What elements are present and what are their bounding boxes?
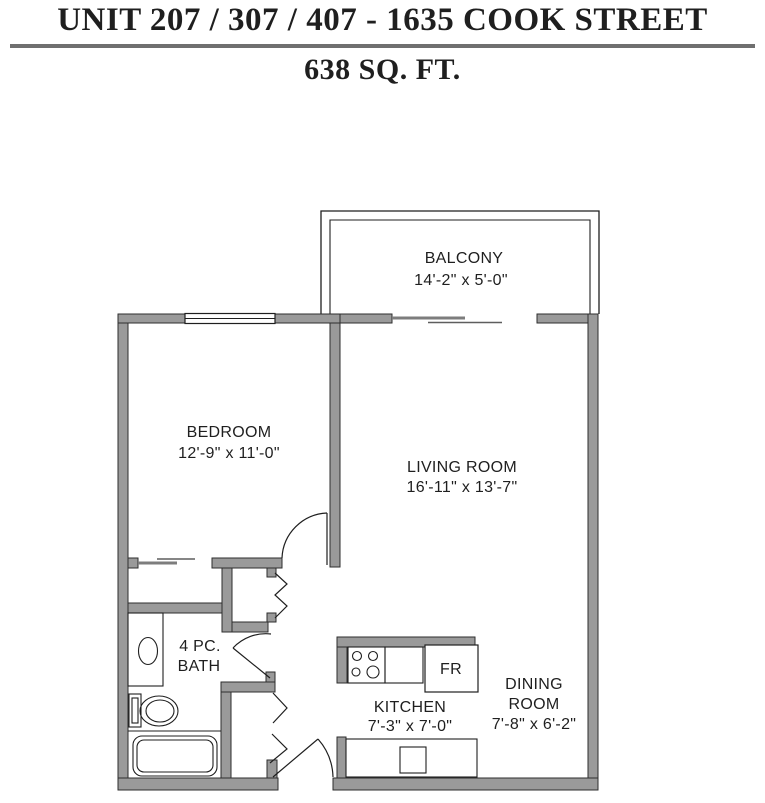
bathroom-label-line2: BATH <box>178 658 221 675</box>
tub-inner <box>137 740 213 772</box>
bathroom-top-wall <box>128 603 222 613</box>
plan-subtitle: 638 SQ. FT. <box>0 53 765 87</box>
balcony-sliding-door <box>392 318 502 323</box>
top-wall-mid <box>275 314 340 323</box>
floor-plan-page: UNIT 207 / 307 / 407 - 1635 COOK STREET … <box>0 0 765 803</box>
toilet-tank <box>129 694 141 727</box>
bedroom-dims: 12'-9" x 11'-0" <box>178 445 280 462</box>
bifold-zigzag <box>273 693 287 723</box>
vanity-sink-icon <box>128 613 163 686</box>
burner <box>352 668 360 676</box>
closet1-bottom-wall <box>232 622 268 632</box>
right-exterior-wall <box>588 314 598 790</box>
door-leaf <box>273 739 318 777</box>
kitchen-sink <box>400 747 426 773</box>
dining-room-dims: 7'-8" x 6'-2" <box>492 716 577 733</box>
tub-outer <box>133 736 217 776</box>
closet1-bifold-door <box>275 573 287 618</box>
door-arc <box>318 739 333 777</box>
bedroom-sliding-door <box>138 559 195 563</box>
bedroom-window <box>185 314 275 324</box>
bath-door-jamb <box>266 672 275 682</box>
kitchen-counter-upper <box>385 647 423 683</box>
kitchen-left-wall <box>337 647 347 683</box>
closet1-left-wall <box>222 568 232 632</box>
door-arc <box>282 513 327 558</box>
dining-room-label-line1: DINING <box>505 676 563 693</box>
bathtub-icon <box>128 731 221 776</box>
bedroom-bottom-wall <box>212 558 282 568</box>
dining-room-label-line2: ROOM <box>509 696 560 713</box>
bathroom-label-line1: 4 PC. <box>179 638 221 655</box>
bifold-zigzag <box>270 734 287 763</box>
closet1-top-jamb <box>267 568 276 577</box>
bottom-wall-right <box>333 778 598 790</box>
burner <box>369 652 378 661</box>
bedroom-door-swing <box>282 513 327 565</box>
toilet-bowl-inner <box>146 700 174 722</box>
door-arc <box>233 634 271 648</box>
bedroom-wall-stub <box>128 558 138 568</box>
top-wall-left <box>118 314 185 323</box>
balcony-dims: 14'-2" x 5'-0" <box>414 272 508 289</box>
plan-header: UNIT 207 / 307 / 407 - 1635 COOK STREET … <box>0 0 765 87</box>
door-leaf <box>233 648 270 678</box>
entry-right-jamb <box>337 737 346 778</box>
bedroom-label: BEDROOM <box>187 424 272 441</box>
toilet-icon <box>129 694 178 727</box>
bathroom-door-swing <box>233 634 271 678</box>
toilet-tank-inner <box>132 698 138 723</box>
bathroom-right-wall <box>221 692 231 778</box>
counter-outline <box>346 739 477 777</box>
balcony-inner-line <box>330 220 590 314</box>
closet1-bottom-jamb <box>267 613 276 622</box>
top-wall-at-living <box>340 314 392 323</box>
kitchen-dims: 7'-3" x 7'-0" <box>368 718 453 735</box>
balcony-label: BALCONY <box>425 250 504 267</box>
living-room-dims: 16'-11" x 13'-7" <box>407 479 518 496</box>
sink-basin <box>139 638 158 665</box>
kitchen-lower-counter <box>346 739 477 777</box>
closet2-bifold-door <box>270 693 287 763</box>
fridge-label: FR <box>440 661 462 678</box>
floor-plan-drawing: FR BALCONY 14'-2" x 5'-0" BEDROOM 12'-9"… <box>0 0 765 803</box>
stove-icon <box>348 647 385 683</box>
living-room-label: LIVING ROOM <box>407 459 517 476</box>
kitchen-label: KITCHEN <box>374 699 446 716</box>
plan-title: UNIT 207 / 307 / 407 - 1635 COOK STREET <box>10 0 755 48</box>
bottom-wall-left <box>118 778 278 790</box>
closet2-top-wall <box>221 682 275 692</box>
burner <box>367 666 379 678</box>
bedroom-living-wall <box>330 323 340 567</box>
bifold-zigzag <box>275 573 287 618</box>
fridge-box: FR <box>425 645 478 692</box>
left-exterior-wall <box>118 314 128 790</box>
burner <box>353 652 362 661</box>
